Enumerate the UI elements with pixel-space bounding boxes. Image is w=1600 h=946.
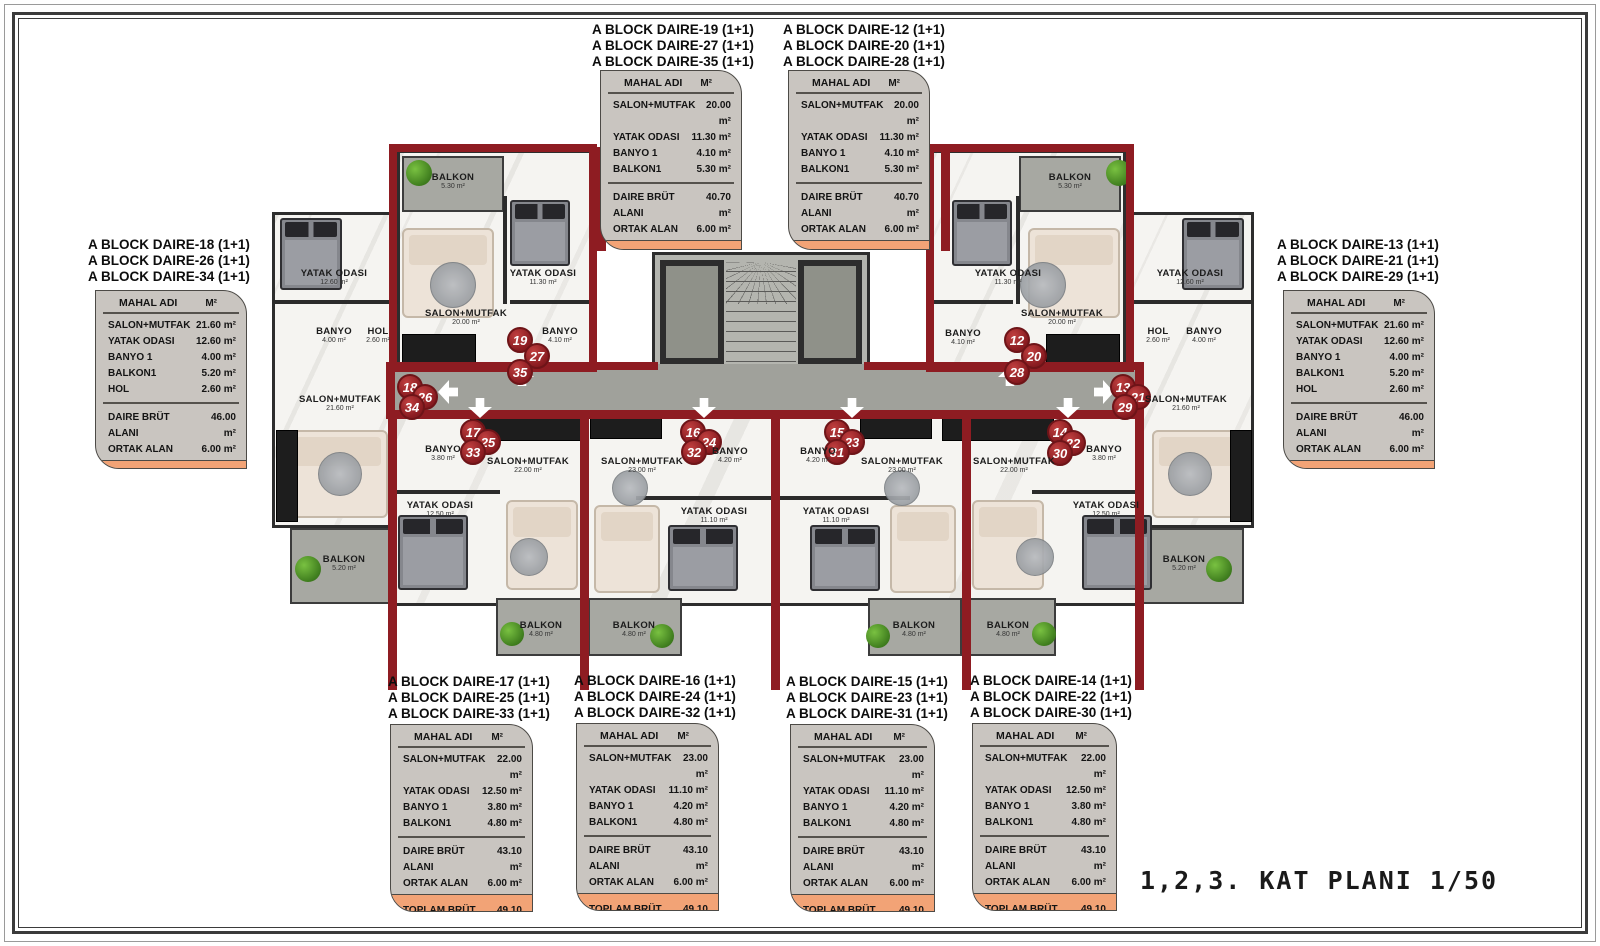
header-name-col: MAHAL ADI	[600, 730, 658, 742]
row-label: DAIRE BRÜT ALANI	[108, 410, 198, 442]
room-name: BANYO	[800, 446, 836, 457]
table-header: MAHAL ADI M²	[608, 71, 734, 94]
table-row: YATAK ODASI11.10 m²	[791, 784, 934, 800]
row-value: 21.60 m²	[1384, 318, 1424, 334]
row-value: 20.00 m²	[696, 98, 732, 130]
row-label: YATAK ODASI	[801, 130, 868, 146]
kitchen-counter	[276, 430, 298, 522]
row-value: 40.70 m²	[884, 190, 919, 222]
row-label: ORTAK ALAN	[403, 876, 468, 892]
unit-title: A BLOCK DAIRE-24 (1+1)	[574, 689, 736, 705]
row-label: TOPLAM BRÜT ALAN	[803, 903, 890, 912]
row-value: 20.00 m²	[884, 98, 920, 130]
room-name: YATAK ODASI	[510, 268, 576, 279]
unit-title: A BLOCK DAIRE-25 (1+1)	[388, 690, 550, 706]
kitchen-counter	[1230, 430, 1252, 522]
room-name: BALKON	[613, 620, 655, 631]
row-label: YATAK ODASI	[403, 784, 470, 800]
unit-title: A BLOCK DAIRE-22 (1+1)	[970, 689, 1132, 705]
row-value: 4.80 m²	[488, 816, 522, 832]
row-value: 4.20 m²	[674, 799, 708, 815]
row-label: DAIRE BRÜT ALANI	[801, 190, 884, 222]
unit-area-table: MAHAL ADI M² SALON+MUTFAK23.00 m² YATAK …	[790, 724, 935, 912]
row-value: 5.30 m²	[697, 162, 731, 178]
table-footer: TOPLAM BRÜT ALAN52.00 m²	[96, 460, 246, 469]
unit-title: A BLOCK DAIRE-18 (1+1)	[88, 237, 250, 253]
divider	[398, 836, 525, 838]
plan-title: 1,2,3. KAT PLANI 1/50	[1140, 866, 1498, 895]
rug	[612, 470, 648, 506]
row-value: 12.60 m²	[1384, 334, 1424, 350]
room-area: 11.30 m²	[975, 279, 1041, 286]
room-name: BANYO	[712, 446, 748, 457]
room-name: SALON+MUTFAK	[299, 394, 381, 405]
table-row: ORTAK ALAN6.00 m²	[973, 875, 1116, 891]
table-totals: DAIRE BRÜT ALANI46.00 m² ORTAK ALAN6.00 …	[1284, 406, 1434, 460]
unit-title: A BLOCK DAIRE-28 (1+1)	[783, 54, 945, 70]
table-footer: TOPLAM BRÜT ALAN52.00 m²	[1284, 460, 1434, 469]
table-totals: DAIRE BRÜT ALANI40.70 m² ORTAK ALAN6.00 …	[601, 186, 741, 240]
table-header: MAHAL ADI M²	[980, 724, 1109, 747]
table-rows: SALON+MUTFAK22.00 m² YATAK ODASI12.50 m²…	[973, 747, 1116, 833]
room-label: SALON+MUTFAK 20.00 m²	[1021, 308, 1103, 326]
row-value: 6.00 m²	[202, 442, 236, 458]
table-row: ORTAK ALAN6.00 m²	[1284, 442, 1434, 458]
row-label: SALON+MUTFAK	[108, 318, 191, 334]
unit-title: A BLOCK DAIRE-15 (1+1)	[786, 674, 948, 690]
table-header: MAHAL ADI M²	[584, 724, 711, 747]
room-label: YATAK ODASI 12.60 m²	[301, 268, 367, 286]
row-value: 22.00 m²	[486, 752, 523, 784]
plant-icon	[295, 556, 321, 582]
table-row: YATAK ODASI12.60 m²	[1284, 334, 1434, 350]
room-area: 2.60 m²	[1146, 337, 1170, 344]
header-unit-col: M²	[893, 732, 905, 743]
header-name-col: MAHAL ADI	[1307, 297, 1365, 309]
bed	[810, 525, 880, 591]
table-row: YATAK ODASI12.50 m²	[391, 784, 532, 800]
divider	[796, 182, 922, 184]
row-label: SALON+MUTFAK	[985, 751, 1068, 783]
table-row: TOPLAM BRÜT ALAN49.10 m²	[803, 903, 924, 912]
table-totals: DAIRE BRÜT ALANI46.00 m² ORTAK ALAN6.00 …	[96, 406, 246, 460]
room-label: SALON+MUTFAK 21.60 m²	[299, 394, 381, 412]
table-row: TOPLAM BRÜT ALAN49.10 m²	[985, 902, 1106, 911]
row-value: 4.10 m²	[885, 146, 919, 162]
row-value: 6.00 m²	[697, 222, 731, 238]
unit-title: A BLOCK DAIRE-17 (1+1)	[388, 674, 550, 690]
wall	[272, 300, 398, 304]
room-name: BANYO	[316, 326, 352, 337]
row-label: ORTAK ALAN	[613, 222, 678, 238]
room-label: BANYO 4.10 m²	[945, 328, 981, 346]
table-row: DAIRE BRÜT ALANI40.70 m²	[601, 190, 741, 222]
row-label: DAIRE BRÜT ALANI	[1296, 410, 1386, 442]
table-row: BALKON15.20 m²	[96, 366, 246, 382]
table-rows: SALON+MUTFAK21.60 m² YATAK ODASI12.60 m²…	[1284, 314, 1434, 400]
room-name: BALKON	[432, 172, 474, 183]
room-name: SALON+MUTFAK	[861, 456, 943, 467]
unit-line	[941, 147, 950, 251]
wall	[1128, 300, 1254, 304]
room-area: 11.10 m²	[681, 517, 747, 524]
stair-fan	[726, 262, 796, 304]
room-area: 3.80 m²	[425, 455, 461, 462]
header-name-col: MAHAL ADI	[624, 77, 682, 89]
room-area: 4.80 m²	[613, 631, 655, 638]
row-value: 12.50 m²	[1066, 783, 1106, 799]
room-label: YATAK ODASI 12.60 m²	[1157, 268, 1223, 286]
unit-line	[771, 412, 780, 690]
kitchen-counter	[590, 417, 662, 439]
unit-card-titles: A BLOCK DAIRE-15 (1+1) A BLOCK DAIRE-23 …	[786, 674, 948, 722]
table-row: ORTAK ALAN6.00 m²	[391, 876, 532, 892]
row-label: ORTAK ALAN	[1296, 442, 1361, 458]
table-row: DAIRE BRÜT ALANI43.10 m²	[577, 843, 718, 875]
table-rows: SALON+MUTFAK23.00 m² YATAK ODASI11.10 m²…	[791, 748, 934, 834]
row-value: 46.00 m²	[198, 410, 236, 442]
table-row: SALON+MUTFAK21.60 m²	[1284, 318, 1434, 334]
row-label: TOPLAM BRÜT ALAN	[985, 902, 1072, 911]
room-name: BANYO	[945, 328, 981, 339]
room-label: SALON+MUTFAK 21.60 m²	[1145, 394, 1227, 412]
room-name: BANYO	[542, 326, 578, 337]
unit-area-table: MAHAL ADI M² SALON+MUTFAK20.00 m² YATAK …	[600, 70, 742, 250]
table-row: BANYO 14.20 m²	[791, 800, 934, 816]
row-label: YATAK ODASI	[613, 130, 680, 146]
table-row: BANYO 13.80 m²	[973, 799, 1116, 815]
unit-title: A BLOCK DAIRE-29 (1+1)	[1277, 269, 1439, 285]
row-label: BANYO 1	[403, 800, 447, 816]
row-value: 23.00 m²	[672, 751, 709, 783]
room-label: BANYO 4.00 m²	[1186, 326, 1222, 344]
row-value: 2.60 m²	[202, 382, 236, 398]
table-row: DAIRE BRÜT ALANI46.00 m²	[96, 410, 246, 442]
row-value: 6.00 m²	[674, 875, 708, 891]
row-value: 21.60 m²	[196, 318, 236, 334]
table-row: DAIRE BRÜT ALANI43.10 m²	[391, 844, 532, 876]
row-label: BALKON1	[985, 815, 1033, 831]
header-name-col: MAHAL ADI	[812, 77, 870, 89]
room-label: BALKON 4.80 m²	[520, 620, 562, 638]
row-value: 6.00 m²	[1072, 875, 1106, 891]
room-name: HOL	[366, 326, 390, 337]
room-label: BANYO 4.00 m²	[316, 326, 352, 344]
table-row: BALKON14.80 m²	[577, 815, 718, 831]
unit-title: A BLOCK DAIRE-19 (1+1)	[592, 22, 754, 38]
row-value: 3.80 m²	[488, 800, 522, 816]
divider	[1291, 402, 1427, 404]
room-name: SALON+MUTFAK	[1145, 394, 1227, 405]
table-header: MAHAL ADI M²	[103, 291, 239, 314]
room-name: YATAK ODASI	[407, 500, 473, 511]
table-row: BALKON14.80 m²	[973, 815, 1116, 831]
row-value: 4.10 m²	[697, 146, 731, 162]
room-label: BALKON 4.80 m²	[613, 620, 655, 638]
rug	[1016, 538, 1054, 576]
unit-card-titles: A BLOCK DAIRE-19 (1+1) A BLOCK DAIRE-27 …	[592, 22, 754, 70]
table-row: DAIRE BRÜT ALANI43.10 m²	[791, 844, 934, 876]
unit-card-titles: A BLOCK DAIRE-13 (1+1) A BLOCK DAIRE-21 …	[1277, 237, 1439, 285]
row-label: BALKON1	[589, 815, 637, 831]
row-value: 4.80 m²	[1072, 815, 1106, 831]
row-label: SALON+MUTFAK	[803, 752, 886, 784]
table-row: BANYO 14.00 m²	[1284, 350, 1434, 366]
room-label: SALON+MUTFAK 23.00 m²	[861, 456, 943, 474]
row-label: DAIRE BRÜT ALANI	[613, 190, 696, 222]
row-value: 11.30 m²	[692, 130, 731, 146]
unit-card-titles: A BLOCK DAIRE-16 (1+1) A BLOCK DAIRE-24 …	[574, 673, 736, 721]
table-totals: DAIRE BRÜT ALANI43.10 m² ORTAK ALAN6.00 …	[791, 840, 934, 894]
room-label: SALON+MUTFAK 22.00 m²	[973, 456, 1055, 474]
row-label: BALKON1	[1296, 366, 1344, 382]
unit-badge: 28	[1004, 359, 1030, 385]
wall	[636, 496, 771, 500]
row-label: SALON+MUTFAK	[403, 752, 486, 784]
row-label: HOL	[108, 382, 129, 398]
row-value: 3.80 m²	[1072, 799, 1106, 815]
room-label: BALKON 4.80 m²	[893, 620, 935, 638]
room-name: YATAK ODASI	[1073, 500, 1139, 511]
room-name: SALON+MUTFAK	[973, 456, 1055, 467]
row-label: TOPLAM BRÜT ALAN	[613, 249, 698, 250]
row-value: 6.00 m²	[890, 876, 924, 892]
row-label: TOPLAM BRÜT ALAN	[403, 903, 489, 912]
table-row: SALON+MUTFAK22.00 m²	[973, 751, 1116, 783]
row-label: BALKON1	[803, 816, 851, 832]
table-rows: SALON+MUTFAK23.00 m² YATAK ODASI11.10 m²…	[577, 747, 718, 833]
room-label: BALKON 5.30 m²	[432, 172, 474, 190]
unit-title: A BLOCK DAIRE-13 (1+1)	[1277, 237, 1439, 253]
room-area: 21.60 m²	[299, 405, 381, 412]
room-area: 2.60 m²	[366, 337, 390, 344]
row-value: 4.80 m²	[890, 816, 924, 832]
room-name: BANYO	[1086, 444, 1122, 455]
room-name: HOL	[1146, 326, 1170, 337]
room-area: 12.50 m²	[1073, 511, 1139, 518]
room-label: HOL 2.60 m²	[366, 326, 390, 344]
table-footer: TOPLAM BRÜT ALAN49.10 m²	[577, 893, 718, 911]
room-name: SALON+MUTFAK	[487, 456, 569, 467]
room-label: BANYO 3.80 m²	[425, 444, 461, 462]
room-label: YATAK ODASI 11.30 m²	[975, 268, 1041, 286]
unit-title: A BLOCK DAIRE-32 (1+1)	[574, 705, 736, 721]
room-label: YATAK ODASI 11.10 m²	[681, 506, 747, 524]
row-label: SALON+MUTFAK	[801, 98, 884, 130]
table-row: BANYO 14.00 m²	[96, 350, 246, 366]
table-row: YATAK ODASI11.10 m²	[577, 783, 718, 799]
row-label: YATAK ODASI	[108, 334, 175, 350]
room-name: YATAK ODASI	[975, 268, 1041, 279]
divider	[980, 835, 1109, 837]
row-label: DAIRE BRÜT ALANI	[589, 843, 673, 875]
row-label: SALON+MUTFAK	[589, 751, 672, 783]
row-value: 6.00 m²	[488, 876, 522, 892]
table-row: YATAK ODASI12.60 m²	[96, 334, 246, 350]
unit-title: A BLOCK DAIRE-12 (1+1)	[783, 22, 945, 38]
row-label: BANYO 1	[801, 146, 845, 162]
row-value: 43.10 m²	[888, 844, 924, 876]
room-name: YATAK ODASI	[1157, 268, 1223, 279]
row-label: BANYO 1	[985, 799, 1029, 815]
row-label: DAIRE BRÜT ALANI	[985, 843, 1070, 875]
table-row: ORTAK ALAN6.00 m²	[601, 222, 741, 238]
room-area: 20.00 m²	[425, 319, 507, 326]
row-label: DAIRE BRÜT ALANI	[403, 844, 487, 876]
room-label: BALKON 4.80 m²	[987, 620, 1029, 638]
table-row: BALKON15.20 m²	[1284, 366, 1434, 382]
plant-icon	[866, 624, 890, 648]
table-row: TOPLAM BRÜT ALAN49.10 m²	[403, 903, 522, 912]
row-value: 46.70 m²	[886, 249, 919, 250]
room-label: YATAK ODASI 12.50 m²	[407, 500, 473, 518]
room-label: YATAK ODASI 12.50 m²	[1073, 500, 1139, 518]
table-totals: DAIRE BRÜT ALANI43.10 m² ORTAK ALAN6.00 …	[973, 839, 1116, 893]
table-row: TOPLAM BRÜT ALAN46.70 m²	[801, 249, 919, 250]
header-unit-col: M²	[1075, 731, 1087, 742]
unit-title: A BLOCK DAIRE-20 (1+1)	[783, 38, 945, 54]
divider	[584, 835, 711, 837]
unit-card-titles: A BLOCK DAIRE-17 (1+1) A BLOCK DAIRE-25 …	[388, 674, 550, 722]
room-area: 11.10 m²	[803, 517, 869, 524]
unit-line	[386, 362, 395, 419]
room-area: 4.10 m²	[945, 339, 981, 346]
table-footer: TOPLAM BRÜT ALAN46.70 m²	[789, 240, 929, 250]
table-row: DAIRE BRÜT ALANI40.70 m²	[789, 190, 929, 222]
header-unit-col: M²	[1393, 298, 1405, 309]
room-area: 4.00 m²	[1186, 337, 1222, 344]
room-area: 22.00 m²	[487, 467, 569, 474]
table-rows: SALON+MUTFAK21.60 m² YATAK ODASI12.60 m²…	[96, 314, 246, 400]
room-area: 5.20 m²	[1163, 565, 1205, 572]
row-label: YATAK ODASI	[1296, 334, 1363, 350]
table-row: TOPLAM BRÜT ALAN46.70 m²	[613, 249, 731, 250]
table-row: YATAK ODASI11.30 m²	[789, 130, 929, 146]
table-row: TOPLAM BRÜT ALAN49.10 m²	[589, 902, 708, 911]
room-label: YATAK ODASI 11.30 m²	[510, 268, 576, 286]
plant-icon	[1032, 622, 1056, 646]
room-name: BALKON	[987, 620, 1029, 631]
plant-icon	[1206, 556, 1232, 582]
kitchen-counter	[942, 417, 1054, 441]
room-area: 12.60 m²	[301, 279, 367, 286]
table-row: ORTAK ALAN6.00 m²	[577, 875, 718, 891]
kitchen-counter	[860, 417, 932, 439]
unit-card-titles: A BLOCK DAIRE-12 (1+1) A BLOCK DAIRE-20 …	[783, 22, 945, 70]
table-row: BALKON14.80 m²	[391, 816, 532, 832]
unit-area-table: MAHAL ADI M² SALON+MUTFAK20.00 m² YATAK …	[788, 70, 930, 250]
unit-title: A BLOCK DAIRE-30 (1+1)	[970, 705, 1132, 721]
table-row: HOL2.60 m²	[1284, 382, 1434, 398]
room-area: 23.00 m²	[601, 467, 683, 474]
table-row: YATAK ODASI12.50 m²	[973, 783, 1116, 799]
table-row: YATAK ODASI11.30 m²	[601, 130, 741, 146]
unit-badge: 32	[681, 439, 707, 465]
row-label: ORTAK ALAN	[985, 875, 1050, 891]
bed	[398, 515, 468, 590]
table-rows: SALON+MUTFAK20.00 m² YATAK ODASI11.30 m²…	[601, 94, 741, 180]
row-value: 4.80 m²	[674, 815, 708, 831]
row-value: 11.30 m²	[880, 130, 919, 146]
room-area: 4.00 m²	[316, 337, 352, 344]
room-area: 4.10 m²	[542, 337, 578, 344]
row-label: BANYO 1	[1296, 350, 1340, 366]
row-value: 40.70 m²	[696, 190, 731, 222]
row-label: ORTAK ALAN	[801, 222, 866, 238]
row-value: 5.20 m²	[1390, 366, 1424, 382]
table-row: BALKON14.80 m²	[791, 816, 934, 832]
room-area: 3.80 m²	[1086, 455, 1122, 462]
sofa	[890, 505, 956, 593]
table-row: SALON+MUTFAK20.00 m²	[789, 98, 929, 130]
table-row: BANYO 14.10 m²	[789, 146, 929, 162]
table-row: SALON+MUTFAK23.00 m²	[791, 752, 934, 784]
room-label: BANYO 4.10 m²	[542, 326, 578, 344]
header-unit-col: M²	[700, 78, 712, 89]
header-unit-col: M²	[491, 732, 503, 743]
rug	[1168, 452, 1212, 496]
row-value: 5.30 m²	[885, 162, 919, 178]
row-label: ORTAK ALAN	[589, 875, 654, 891]
table-totals: DAIRE BRÜT ALANI43.10 m² ORTAK ALAN6.00 …	[577, 839, 718, 893]
room-area: 5.30 m²	[1049, 183, 1091, 190]
unit-title: A BLOCK DAIRE-16 (1+1)	[574, 673, 736, 689]
unit-title: A BLOCK DAIRE-14 (1+1)	[970, 673, 1132, 689]
table-row: SALON+MUTFAK21.60 m²	[96, 318, 246, 334]
unit-title: A BLOCK DAIRE-33 (1+1)	[388, 706, 550, 722]
unit-line	[388, 412, 397, 690]
row-label: ORTAK ALAN	[108, 442, 173, 458]
table-rows: SALON+MUTFAK20.00 m² YATAK ODASI11.30 m²…	[789, 94, 929, 180]
row-value: 2.60 m²	[1390, 382, 1424, 398]
header-unit-col: M²	[888, 78, 900, 89]
table-header: MAHAL ADI M²	[796, 71, 922, 94]
divider	[798, 836, 927, 838]
row-value: 49.10 m²	[1072, 902, 1106, 911]
row-value: 46.70 m²	[698, 249, 731, 250]
row-label: DAIRE BRÜT ALANI	[803, 844, 888, 876]
unit-title: A BLOCK DAIRE-35 (1+1)	[592, 54, 754, 70]
header-unit-col: M²	[205, 298, 217, 309]
row-label: YATAK ODASI	[985, 783, 1052, 799]
rug	[318, 452, 362, 496]
sofa	[594, 505, 660, 593]
table-header: MAHAL ADI M²	[1291, 291, 1427, 314]
table-row: BANYO 14.20 m²	[577, 799, 718, 815]
row-value: 12.50 m²	[482, 784, 522, 800]
table-rows: SALON+MUTFAK22.00 m² YATAK ODASI12.50 m²…	[391, 748, 532, 834]
wall	[396, 490, 500, 494]
table-footer: TOPLAM BRÜT ALAN49.10 m²	[973, 893, 1116, 911]
unit-card-titles: A BLOCK DAIRE-18 (1+1) A BLOCK DAIRE-26 …	[88, 237, 250, 285]
table-row: BALKON15.30 m²	[789, 162, 929, 178]
bed	[668, 525, 738, 591]
room-area: 4.20 m²	[800, 457, 836, 464]
table-row: BANYO 13.80 m²	[391, 800, 532, 816]
row-label: BALKON1	[108, 366, 156, 382]
room-name: YATAK ODASI	[681, 506, 747, 517]
row-value: 4.00 m²	[1390, 350, 1424, 366]
table-row: DAIRE BRÜT ALANI43.10 m²	[973, 843, 1116, 875]
room-label: BANYO 4.20 m²	[712, 446, 748, 464]
unit-line	[962, 412, 971, 690]
room-area: 11.30 m²	[510, 279, 576, 286]
table-row: SALON+MUTFAK20.00 m²	[601, 98, 741, 130]
row-value: 46.00 m²	[1386, 410, 1424, 442]
row-label: BANYO 1	[613, 146, 657, 162]
unit-title: A BLOCK DAIRE-21 (1+1)	[1277, 253, 1439, 269]
table-footer: TOPLAM BRÜT ALAN46.70 m²	[601, 240, 741, 250]
